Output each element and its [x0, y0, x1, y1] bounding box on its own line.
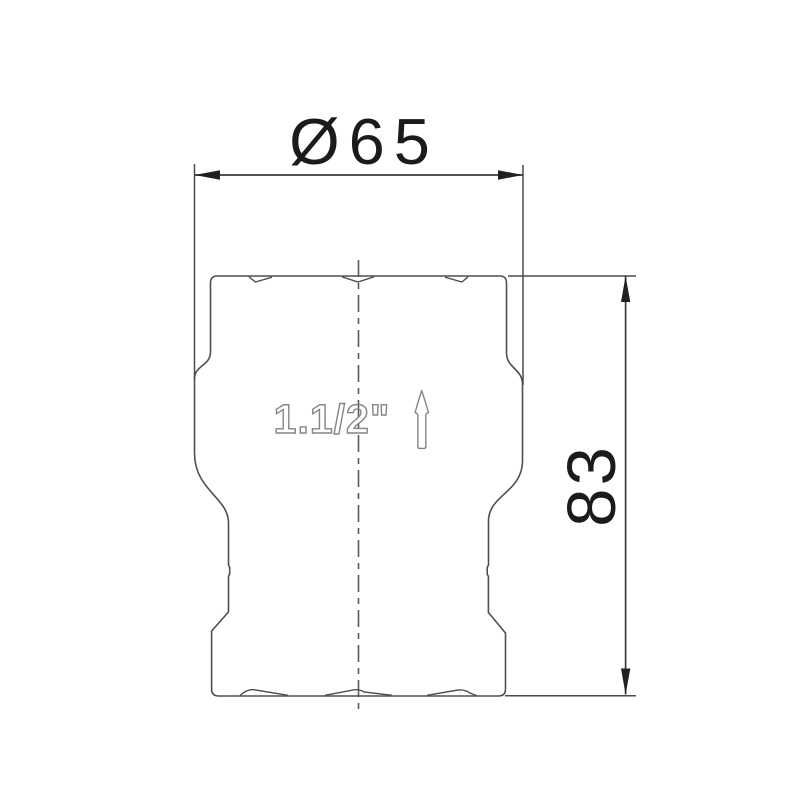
svg-text:83: 83 — [553, 444, 630, 527]
svg-text:Ø65: Ø65 — [289, 105, 439, 178]
svg-text:1.1/2": 1.1/2" — [274, 396, 391, 442]
